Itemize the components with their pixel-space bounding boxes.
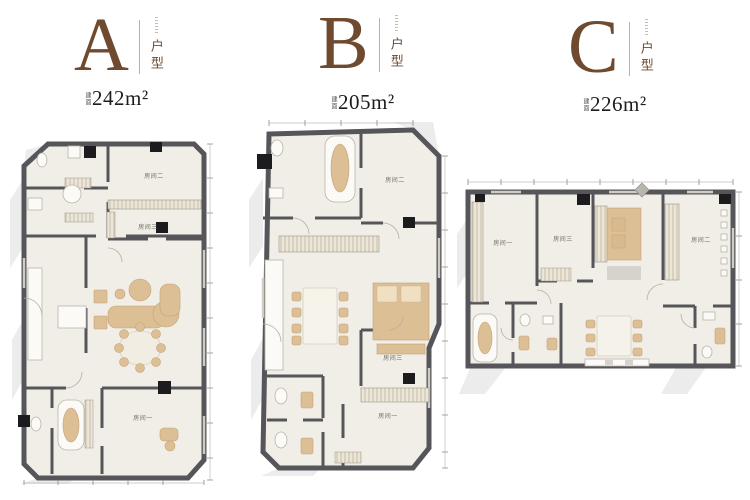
- room-label: 房间一: [493, 239, 513, 247]
- unit-a-type-label: 户型: [147, 39, 166, 73]
- room-label: 房间二: [144, 172, 164, 180]
- unit-a-letter: A: [74, 14, 129, 76]
- unit-c-header: C 户型: [568, 16, 656, 78]
- unit-a-header: A 户型: [74, 14, 166, 76]
- room-label: 房间二: [691, 236, 711, 244]
- unit-c-area: 建面 226m²: [582, 92, 647, 117]
- room-label: 房间二: [385, 176, 405, 184]
- area-prefix: 建面: [582, 98, 588, 112]
- room-label: 房间一: [378, 412, 398, 420]
- room-label: 房间三: [138, 223, 158, 231]
- room-label: 房间三: [383, 354, 403, 362]
- room-label: 房间三: [553, 235, 573, 243]
- unit-b-header: B 户型: [318, 12, 406, 74]
- area-value: 226m²: [590, 92, 647, 117]
- unit-a-area: 建面 242m²: [84, 86, 149, 111]
- floor-plan-b: 房间二 房间三 房间一: [243, 118, 448, 496]
- unit-c-letter: C: [568, 16, 619, 78]
- area-value: 205m²: [338, 90, 395, 115]
- floor-plan-a: 房间二 房间三 房间一: [8, 138, 213, 485]
- room-label: 房间一: [133, 414, 153, 422]
- unit-b-letter: B: [318, 12, 369, 74]
- unit-b-area: 建面 205m²: [330, 90, 395, 115]
- unit-c-type-label: 户型: [637, 41, 656, 75]
- header-divider: [139, 20, 140, 74]
- header-divider: [379, 18, 380, 72]
- header-divider: [629, 22, 630, 76]
- floor-plan-c: 房间一 房间三 房间二: [455, 168, 745, 408]
- fine-print: [395, 15, 398, 33]
- area-prefix: 建面: [84, 92, 90, 106]
- area-prefix: 建面: [330, 96, 336, 110]
- unit-b-type-label: 户型: [387, 37, 406, 71]
- area-value: 242m²: [92, 86, 149, 111]
- fine-print: [645, 19, 648, 37]
- fine-print: [155, 17, 158, 35]
